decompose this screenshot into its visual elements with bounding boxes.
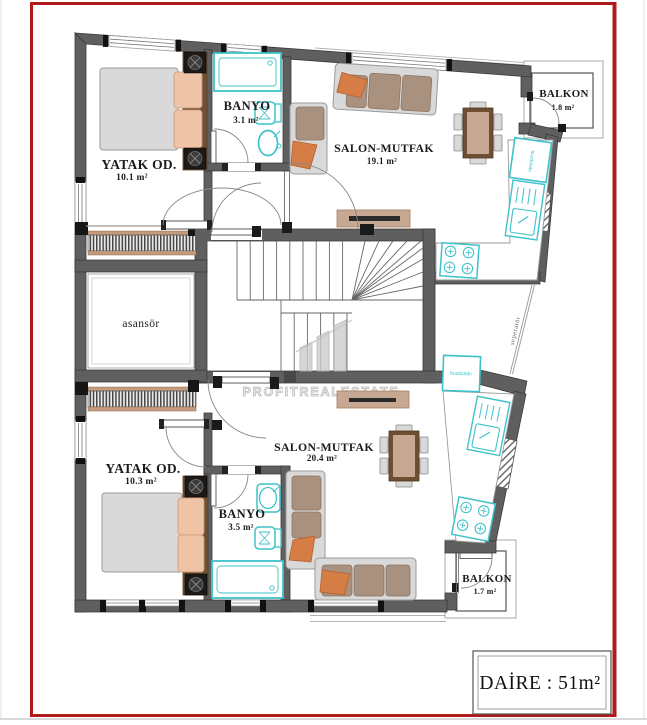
svg-text:DAİRE : 51m²: DAİRE : 51m² [479,673,600,694]
svg-text:3.5 m²: 3.5 m² [228,522,254,532]
svg-text:10.3 m²: 10.3 m² [125,477,157,487]
svg-text:SALON-MUTFAK: SALON-MUTFAK [334,141,434,155]
svg-text:BANYO: BANYO [224,99,271,113]
svg-text:20.4 m²: 20.4 m² [307,453,337,463]
svg-text:YATAK OD.: YATAK OD. [105,461,180,476]
svg-text:YATAK OD.: YATAK OD. [101,157,176,172]
svg-text:10.1 m²: 10.1 m² [116,173,148,183]
svg-text:1.7 m²: 1.7 m² [474,587,497,596]
svg-text:3.1 m²: 3.1 m² [233,115,259,125]
svg-text:19.1 m²: 19.1 m² [367,156,397,166]
svg-text:SALON-MUTFAK: SALON-MUTFAK [274,440,374,454]
svg-text:BALKON: BALKON [462,573,511,585]
svg-text:asansör: asansör [122,318,159,330]
svg-text:BALKON: BALKON [539,88,588,100]
svg-text:buzdolabı: buzdolabı [450,371,472,378]
svg-text:BANYO: BANYO [219,507,266,521]
